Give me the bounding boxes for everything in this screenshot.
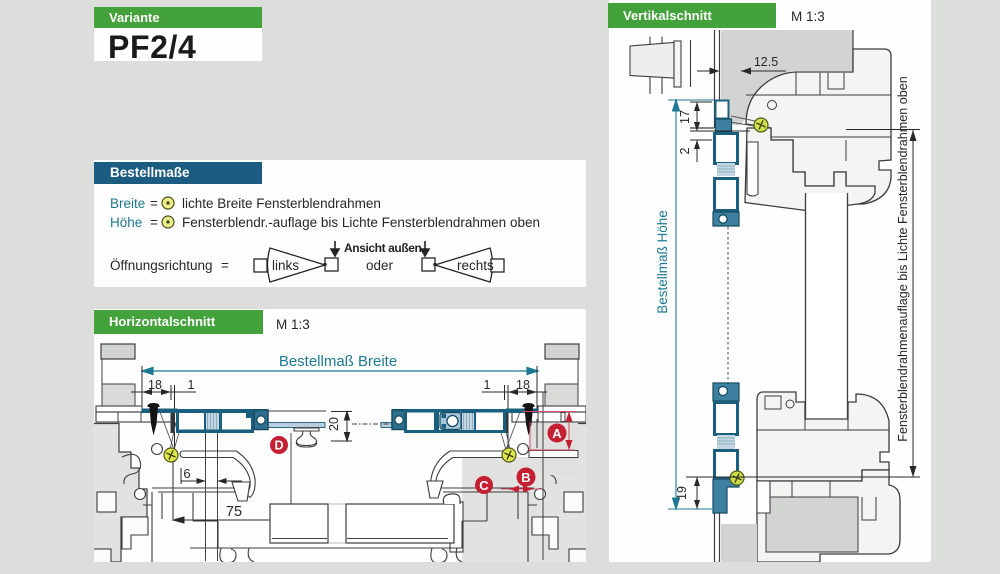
svg-text:19: 19 bbox=[675, 486, 689, 500]
svg-text:A: A bbox=[552, 426, 562, 441]
svg-text:1: 1 bbox=[188, 378, 195, 392]
svg-text:18: 18 bbox=[148, 378, 162, 392]
svg-text:20: 20 bbox=[327, 417, 341, 431]
svg-text:links: links bbox=[272, 258, 299, 273]
svg-text:Fensterblendrahmenauflage bis: Fensterblendrahmenauflage bis Lichte Fen… bbox=[896, 76, 910, 441]
svg-text:18: 18 bbox=[516, 378, 530, 392]
svg-text:2: 2 bbox=[678, 147, 692, 154]
svg-text:rechts: rechts bbox=[457, 258, 494, 273]
svg-text:D: D bbox=[274, 439, 283, 453]
svg-text:6: 6 bbox=[183, 466, 190, 481]
svg-text:C: C bbox=[479, 478, 489, 493]
svg-text:1: 1 bbox=[484, 378, 491, 392]
svg-text:Bestellmaß Höhe: Bestellmaß Höhe bbox=[655, 210, 670, 314]
svg-text:Bestellmaß Breite: Bestellmaß Breite bbox=[279, 353, 397, 370]
svg-text:17: 17 bbox=[678, 110, 692, 124]
svg-text:75: 75 bbox=[226, 504, 242, 520]
svg-text:12.5: 12.5 bbox=[754, 55, 778, 69]
svg-text:B: B bbox=[521, 470, 530, 485]
